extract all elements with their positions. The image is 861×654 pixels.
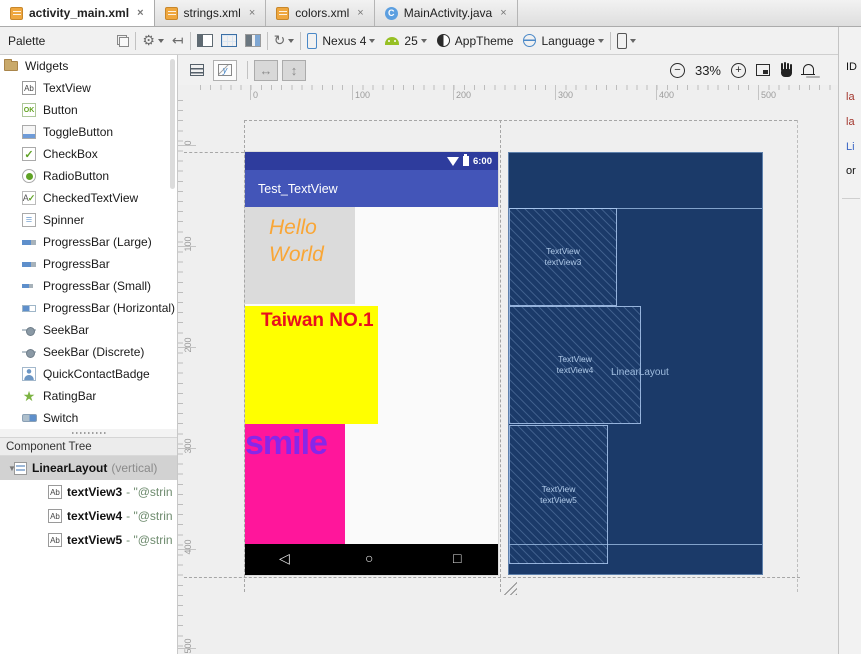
design-surface-toolbar: y ↔ ↕ − 33% + [178, 55, 838, 85]
chevron-down-icon [288, 39, 294, 43]
app-title: Test_TextView [258, 182, 338, 196]
palette-item-label: ProgressBar (Small) [43, 279, 151, 293]
palette-group-widgets[interactable]: Widgets [0, 55, 177, 77]
selection-guide-left [244, 120, 245, 592]
palette-item-label: Switch [43, 411, 78, 425]
ruler-tick [352, 85, 353, 100]
chevron-down-icon [369, 39, 375, 43]
palette-item-label: SeekBar (Discrete) [43, 345, 144, 359]
ruler-label: 200 [456, 90, 471, 100]
status-time: 6:00 [473, 156, 492, 167]
tab-close-icon[interactable]: × [500, 7, 506, 19]
palette-item-label: ProgressBar [43, 257, 110, 271]
zoom-out-button[interactable]: − [670, 63, 685, 78]
xy-axis-icon: y [218, 64, 232, 76]
textview-icon [48, 509, 62, 523]
blueprint-block-type: TextView [542, 484, 576, 495]
expand-vertical-button[interactable]: ↕ [282, 60, 306, 81]
vertical-arrow-icon: ↕ [291, 63, 298, 78]
tree-row-textview3[interactable]: textView3 - "@strin [0, 480, 177, 504]
properties-panel-sliver: ID la la Li or [838, 27, 861, 654]
toggle-variants-button[interactable]: y [213, 60, 237, 81]
ruler-label: 500 [183, 635, 193, 654]
palette-item-label: ProgressBar (Large) [43, 235, 152, 249]
expand-arrow-icon[interactable]: ▼ [0, 464, 14, 473]
radiobutton-icon [22, 169, 36, 183]
blueprint-linearlayout-label: LinearLayout [611, 367, 669, 378]
selection-guide-middle [500, 120, 501, 592]
palette-item-label: SeekBar [43, 323, 89, 337]
spinner-icon [22, 213, 36, 227]
props-row-id[interactable]: ID [846, 61, 857, 73]
props-divider [842, 198, 860, 199]
chevron-down-icon [158, 39, 164, 43]
android-api-icon[interactable] [385, 37, 399, 45]
ratingbar-icon [22, 389, 36, 403]
device-selector[interactable]: Nexus 4 [322, 34, 366, 48]
device-config-icon[interactable] [617, 33, 627, 49]
palette-item-label: Spinner [43, 213, 84, 227]
palette-item-label: TextView [43, 81, 91, 95]
tab-strings-xml[interactable]: strings.xml × [155, 0, 267, 26]
tree-node-name: textView3 [67, 485, 122, 499]
pin-panel-icon[interactable]: ↤ [172, 32, 184, 49]
tab-label: strings.xml [184, 6, 241, 20]
tab-label: activity_main.xml [29, 6, 129, 20]
props-row-layout-height[interactable]: la [846, 116, 855, 128]
copy-icon[interactable] [117, 35, 129, 47]
separator [190, 32, 191, 50]
palette-title: Palette [8, 34, 45, 48]
hello-line: Hello [269, 214, 355, 241]
checkedtextview-icon [22, 191, 36, 205]
blueprint-block-id: textView4 [557, 365, 594, 376]
java-class-icon: C [385, 7, 398, 20]
language-selector[interactable]: Language [541, 34, 594, 48]
chevron-down-icon [421, 39, 427, 43]
battery-icon [463, 156, 469, 166]
progressbar-icon [22, 240, 36, 245]
device-phone-icon[interactable] [307, 33, 317, 49]
ruler-label: 400 [183, 536, 193, 558]
palette-item-spinner[interactable]: Spinner [0, 209, 177, 231]
rotate-device-icon[interactable]: ↻ [274, 32, 286, 49]
chevron-down-icon [630, 39, 636, 43]
palette-scrollbar[interactable] [170, 59, 175, 189]
progressbar-small-icon [22, 284, 33, 288]
ruler-label: 500 [761, 90, 776, 100]
palette-item-quickcontactbadge[interactable]: QuickContactBadge [0, 363, 177, 385]
separator [610, 32, 611, 50]
resize-handle[interactable] [502, 580, 517, 595]
ruler-guide-stub [184, 152, 244, 153]
component-tree-title: Component Tree [0, 437, 177, 456]
textview5-widget[interactable]: smile [245, 424, 345, 544]
horizontal-arrow-icon: ↔ [260, 63, 273, 78]
smile-text: smile [245, 424, 345, 462]
ruler-label: 400 [659, 90, 674, 100]
separator [300, 32, 301, 50]
palette-item-togglebutton[interactable]: ToggleButton [0, 121, 177, 143]
xml-file-icon [276, 7, 289, 20]
tab-colors-xml[interactable]: colors.xml × [266, 0, 374, 26]
tab-close-icon[interactable]: × [137, 7, 143, 19]
tab-label: colors.xml [295, 6, 349, 20]
separator [135, 32, 136, 50]
editor-toolbar: Palette ⚙ ↤ ↻ Nexus 4 25 AppTheme Langua… [0, 27, 861, 55]
palette-item-label: RatingBar [43, 389, 96, 403]
tree-row-textview4[interactable]: textView4 - "@strin [0, 504, 177, 528]
ruler-label: 100 [355, 90, 370, 100]
tree-row-textview5[interactable]: textView5 - "@strin [0, 528, 177, 552]
palette-item-radiobutton[interactable]: RadioButton [0, 165, 177, 187]
palette-item-textview[interactable]: TextView [0, 77, 177, 99]
design-view-device[interactable]: 6:00 Test_TextView Hello World Taiwan NO… [245, 152, 498, 575]
palette-item-ratingbar[interactable]: RatingBar [0, 385, 177, 407]
design-view-icon[interactable] [197, 34, 213, 47]
togglebutton-icon [22, 125, 36, 139]
palette-item-seekbar[interactable]: SeekBar [0, 319, 177, 341]
blueprint-textview4[interactable]: TextView textView4 [509, 306, 641, 424]
android-studio-layout-editor: activity_main.xml × strings.xml × colors… [0, 0, 861, 654]
tab-mainactivity-java[interactable]: C MainActivity.java × [375, 0, 518, 26]
ruler-label: 0 [183, 132, 193, 154]
palette-item-checkedtextview[interactable]: CheckedTextView [0, 187, 177, 209]
separator [267, 32, 268, 50]
theme-selector[interactable]: AppTheme [455, 34, 514, 48]
xml-file-icon [10, 7, 23, 20]
show-all-variants-button[interactable] [185, 60, 209, 81]
palette-item-label: CheckedTextView [43, 191, 138, 205]
switch-icon [22, 414, 37, 422]
zoom-to-fit-icon[interactable] [756, 64, 770, 76]
blueprint-block-id: textView5 [540, 495, 577, 506]
seekbar-icon [22, 326, 36, 334]
tree-node-name: textView4 [67, 509, 122, 523]
palette-item-label: QuickContactBadge [43, 367, 150, 381]
theme-contrast-icon[interactable] [437, 34, 450, 47]
notifications-bell-icon[interactable] [803, 64, 814, 74]
selection-guide-right [797, 120, 798, 592]
palette-item-label: ProgressBar (Horizontal) [43, 301, 175, 315]
gear-icon[interactable]: ⚙ [142, 32, 155, 49]
screen-body: Hello World Taiwan NO.1 smile [245, 207, 498, 544]
vertical-ruler: 0 100 200 300 400 500 [178, 100, 200, 654]
textview3-widget[interactable]: Hello World [245, 207, 355, 304]
separator [247, 61, 248, 79]
checkbox-icon [22, 147, 36, 161]
navigation-bar: ◁ ○ □ [245, 544, 498, 575]
props-row-linearlayout[interactable]: Li [846, 141, 855, 153]
taiwan-text: Taiwan NO.1 [261, 310, 378, 332]
tree-node-value: - "@strin [126, 533, 172, 547]
palette-item-progressbar-small[interactable]: ProgressBar (Small) [0, 275, 177, 297]
blueprint-block-type: TextView [558, 354, 592, 365]
props-row-orientation[interactable]: or [846, 165, 856, 177]
editor-tab-bar: activity_main.xml × strings.xml × colors… [0, 0, 861, 27]
api-level-selector[interactable]: 25 [404, 34, 417, 48]
progressbar-icon [22, 262, 36, 267]
tab-label: MainActivity.java [404, 6, 492, 20]
palette-item-label: Button [43, 103, 78, 117]
blueprint-view-device[interactable]: TextView textView3 TextView textView4 Te… [508, 152, 763, 575]
split-view-icon[interactable] [245, 34, 261, 47]
props-row-layout-width[interactable]: la [846, 91, 855, 103]
tab-activity-main-xml[interactable]: activity_main.xml × [0, 0, 155, 26]
rows-icon [190, 64, 204, 76]
blueprint-block-id: textView3 [545, 257, 582, 268]
app-bar: Test_TextView [245, 170, 498, 207]
textview4-widget[interactable]: Taiwan NO.1 [245, 306, 378, 424]
folder-icon [4, 61, 18, 71]
zoom-in-button[interactable]: + [731, 63, 746, 78]
blueprint-view-icon[interactable] [221, 34, 237, 47]
palette-item-progressbar-horizontal[interactable]: ProgressBar (Horizontal) [0, 297, 177, 319]
pan-hand-icon[interactable] [780, 63, 793, 77]
ruler-tick [453, 85, 454, 100]
textview-icon [22, 81, 36, 95]
tab-close-icon[interactable]: × [357, 7, 363, 19]
linearlayout-icon [14, 462, 27, 475]
tree-node-value: - "@strin [126, 485, 172, 499]
textview-icon [48, 485, 62, 499]
palette-item-seekbar-discrete[interactable]: SeekBar (Discrete) [0, 341, 177, 363]
ruler-tick [250, 85, 251, 100]
palette-group-label: Widgets [25, 59, 68, 73]
selection-guide-top [244, 120, 797, 121]
ruler-label: 300 [558, 90, 573, 100]
home-icon[interactable]: ○ [365, 550, 373, 566]
xml-file-icon [165, 7, 178, 20]
quickcontactbadge-icon [22, 367, 36, 381]
palette-item-label: RadioButton [43, 169, 109, 183]
chevron-down-icon [598, 39, 604, 43]
ruler-label: 100 [183, 233, 193, 255]
ruler-label: 200 [183, 334, 193, 356]
tree-row-linearlayout[interactable]: ▼ LinearLayout (vertical) [0, 456, 177, 480]
component-tree-panel: Component Tree ▼ LinearLayout (vertical)… [0, 437, 177, 654]
ruler-label: 300 [183, 435, 193, 457]
wifi-icon [447, 157, 459, 166]
selection-guide-bottom [184, 577, 800, 578]
palette-item-switch[interactable]: Switch [0, 407, 177, 429]
panel-splitter[interactable] [0, 429, 177, 437]
ruler-tick [758, 85, 759, 100]
zoom-controls: − 33% + [670, 63, 814, 78]
button-icon [22, 103, 36, 117]
tree-node-name: textView5 [67, 533, 122, 547]
globe-icon[interactable] [523, 34, 536, 47]
tree-node-name: LinearLayout [32, 461, 107, 475]
palette-item-button[interactable]: Button [0, 99, 177, 121]
blueprint-block-type: TextView [546, 246, 580, 257]
horizontal-ruler: 0 100 200 300 400 500 [200, 85, 838, 100]
palette-item-progressbar[interactable]: ProgressBar [0, 253, 177, 275]
palette-item-label: CheckBox [43, 147, 98, 161]
tree-node-suffix: (vertical) [111, 461, 157, 475]
blueprint-textview5[interactable]: TextView textView5 [509, 425, 608, 564]
status-bar: 6:00 [245, 152, 498, 170]
expand-horizontal-button[interactable]: ↔ [254, 60, 278, 81]
blueprint-textview3[interactable]: TextView textView3 [509, 208, 617, 306]
tree-node-value: - "@strin [126, 509, 172, 523]
palette-item-checkbox[interactable]: CheckBox [0, 143, 177, 165]
ruler-tick [555, 85, 556, 100]
seekbar-icon [22, 348, 36, 356]
tab-close-icon[interactable]: × [249, 7, 255, 19]
ruler-label: 0 [253, 90, 258, 100]
hello-line: World [269, 241, 355, 268]
textview-icon [48, 533, 62, 547]
zoom-level: 33% [695, 63, 721, 78]
back-icon[interactable]: ◁ [279, 550, 290, 567]
palette-panel: Widgets TextView Button ToggleButton Che… [0, 55, 177, 429]
progressbar-horizontal-icon [22, 305, 36, 312]
palette-item-label: ToggleButton [43, 125, 113, 139]
palette-item-progressbar-large[interactable]: ProgressBar (Large) [0, 231, 177, 253]
recents-icon[interactable]: □ [453, 550, 461, 566]
ruler-tick [656, 85, 657, 100]
